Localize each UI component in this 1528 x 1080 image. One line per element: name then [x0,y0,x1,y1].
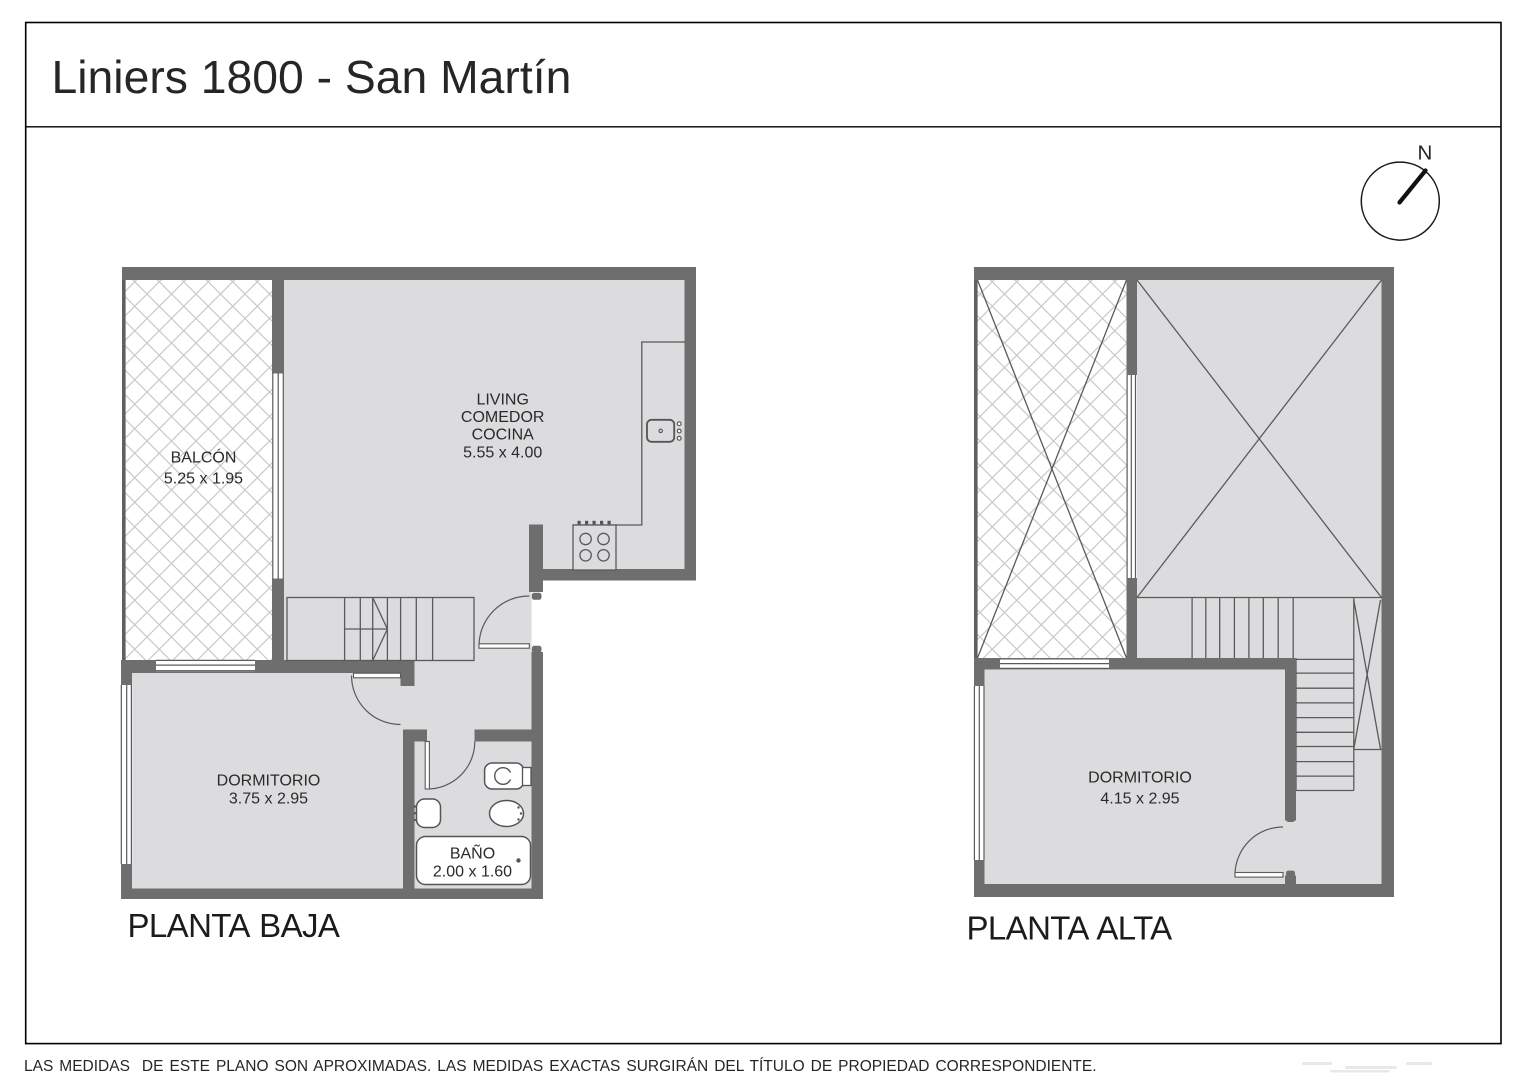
svg-text:LIVING: LIVING [476,392,528,409]
svg-text:3.75 x 2.95: 3.75 x 2.95 [229,791,308,808]
svg-text:LAS MEDIDAS DE ESTE PLANO SON: LAS MEDIDAS DE ESTE PLANO SON APROXIMADA… [24,1058,1097,1075]
svg-text:BALCÓN: BALCÓN [171,448,237,467]
svg-text:2.00 x 1.60: 2.00 x 1.60 [433,864,512,881]
svg-text:DORMITORIO: DORMITORIO [1088,770,1192,787]
svg-text:COCINA: COCINA [472,427,535,444]
svg-text:PLANTA BAJA: PLANTA BAJA [128,907,340,944]
svg-text:Liniers 1800 - San Martín: Liniers 1800 - San Martín [52,51,572,103]
svg-text:DORMITORIO: DORMITORIO [217,773,321,790]
svg-text:4.15 x 2.95: 4.15 x 2.95 [1100,791,1179,808]
svg-text:N: N [1418,142,1433,165]
svg-text:5.55 x 4.00: 5.55 x 4.00 [463,445,542,462]
svg-text:BAÑO: BAÑO [450,843,495,863]
svg-text:COMEDOR: COMEDOR [461,409,545,426]
svg-text:PLANTA ALTA: PLANTA ALTA [967,910,1173,947]
svg-text:5.25 x 1.95: 5.25 x 1.95 [164,471,243,488]
